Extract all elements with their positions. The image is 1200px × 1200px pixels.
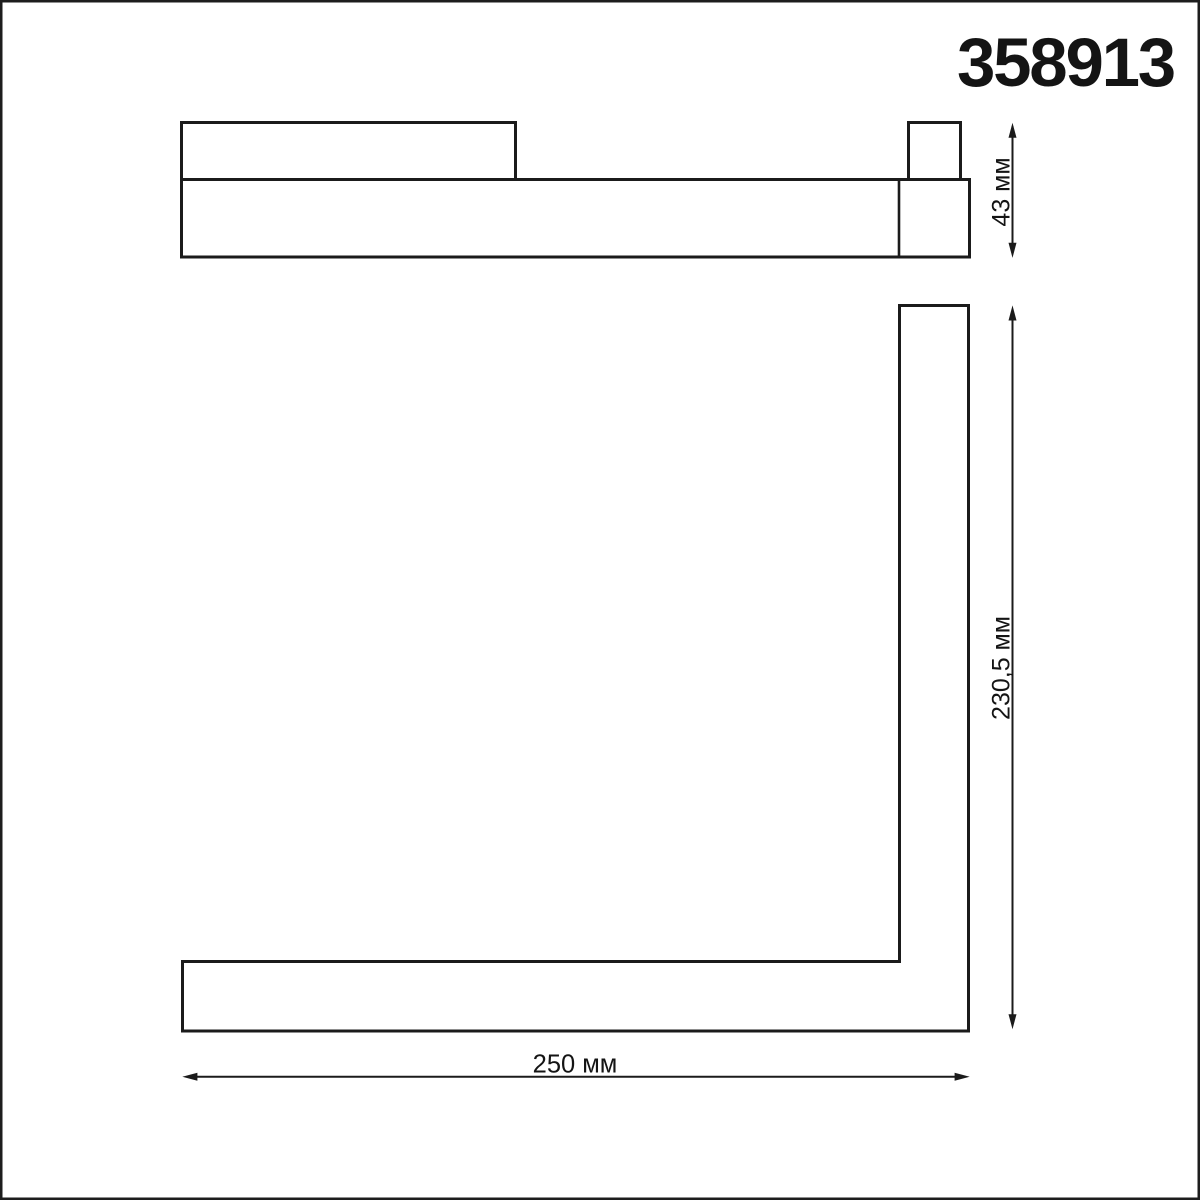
svg-text:230,5 мм: 230,5 мм <box>988 616 1016 720</box>
svg-text:250 мм: 250 мм <box>533 1051 618 1079</box>
svg-text:43 мм: 43 мм <box>988 157 1016 226</box>
svg-text:358913: 358913 <box>957 24 1174 101</box>
